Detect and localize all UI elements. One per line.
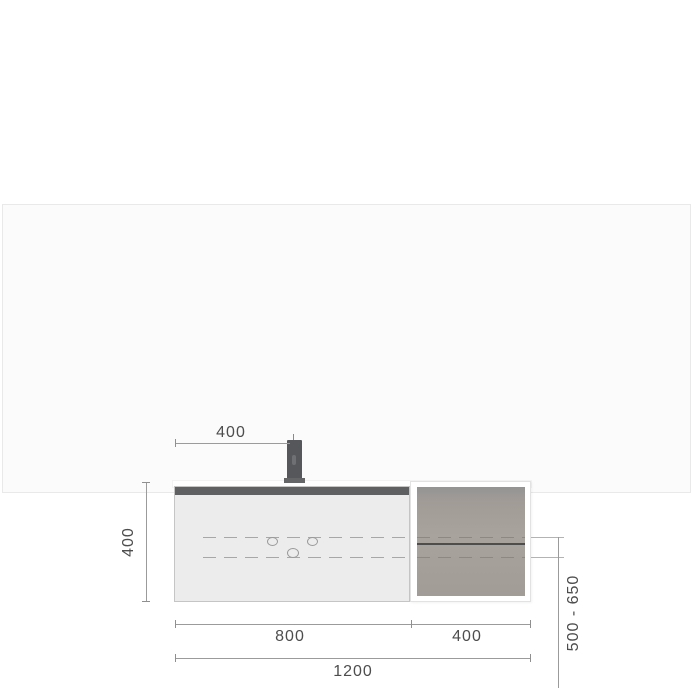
dimension-tick [175,439,176,447]
hidden-line-upper [203,537,408,538]
basin-hole-icon [267,537,278,546]
dimension-line-mounting-height [558,537,559,688]
hidden-line-upper-shelf [417,537,525,538]
extension-line-lower [531,557,564,558]
drawing-panel: 400 400 800 400 1200 500 - 650 [2,204,691,493]
hidden-line-lower [203,557,408,558]
basin-hole-icon [287,548,299,558]
dimension-tick [142,601,150,602]
dimension-line-widths [175,624,530,625]
dimension-tick [411,620,412,628]
dimension-line-total-width [175,658,530,659]
dimension-label-total-width: 1200 [318,664,388,680]
faucet-base-icon [284,478,305,483]
dimension-tick [175,654,176,662]
dimension-tick [530,654,531,662]
dimension-label-unit-height: 400 [121,517,137,567]
shelf-board [417,543,525,545]
dimension-tick [530,620,531,628]
cabinet-top-trim [175,487,409,495]
hidden-line-lower-shelf [417,557,525,558]
faucet-handle-icon [292,455,296,465]
vanity-cabinet [174,486,410,602]
extension-line-upper [531,537,564,538]
open-shelf-unit [410,481,531,602]
shelf-interior [417,487,525,596]
basin-hole-icon [307,537,318,546]
dimension-line-tap-offset [175,443,290,444]
dimension-line-unit-height [146,482,147,602]
dimension-label-vanity-width: 800 [260,629,320,645]
dimension-label-shelf-width: 400 [437,629,497,645]
dimension-tick [175,620,176,628]
dimension-label-mounting-height: 500 - 650 [566,568,582,658]
dimension-tick [142,482,150,483]
dimension-label-tap-offset: 400 [211,425,251,441]
